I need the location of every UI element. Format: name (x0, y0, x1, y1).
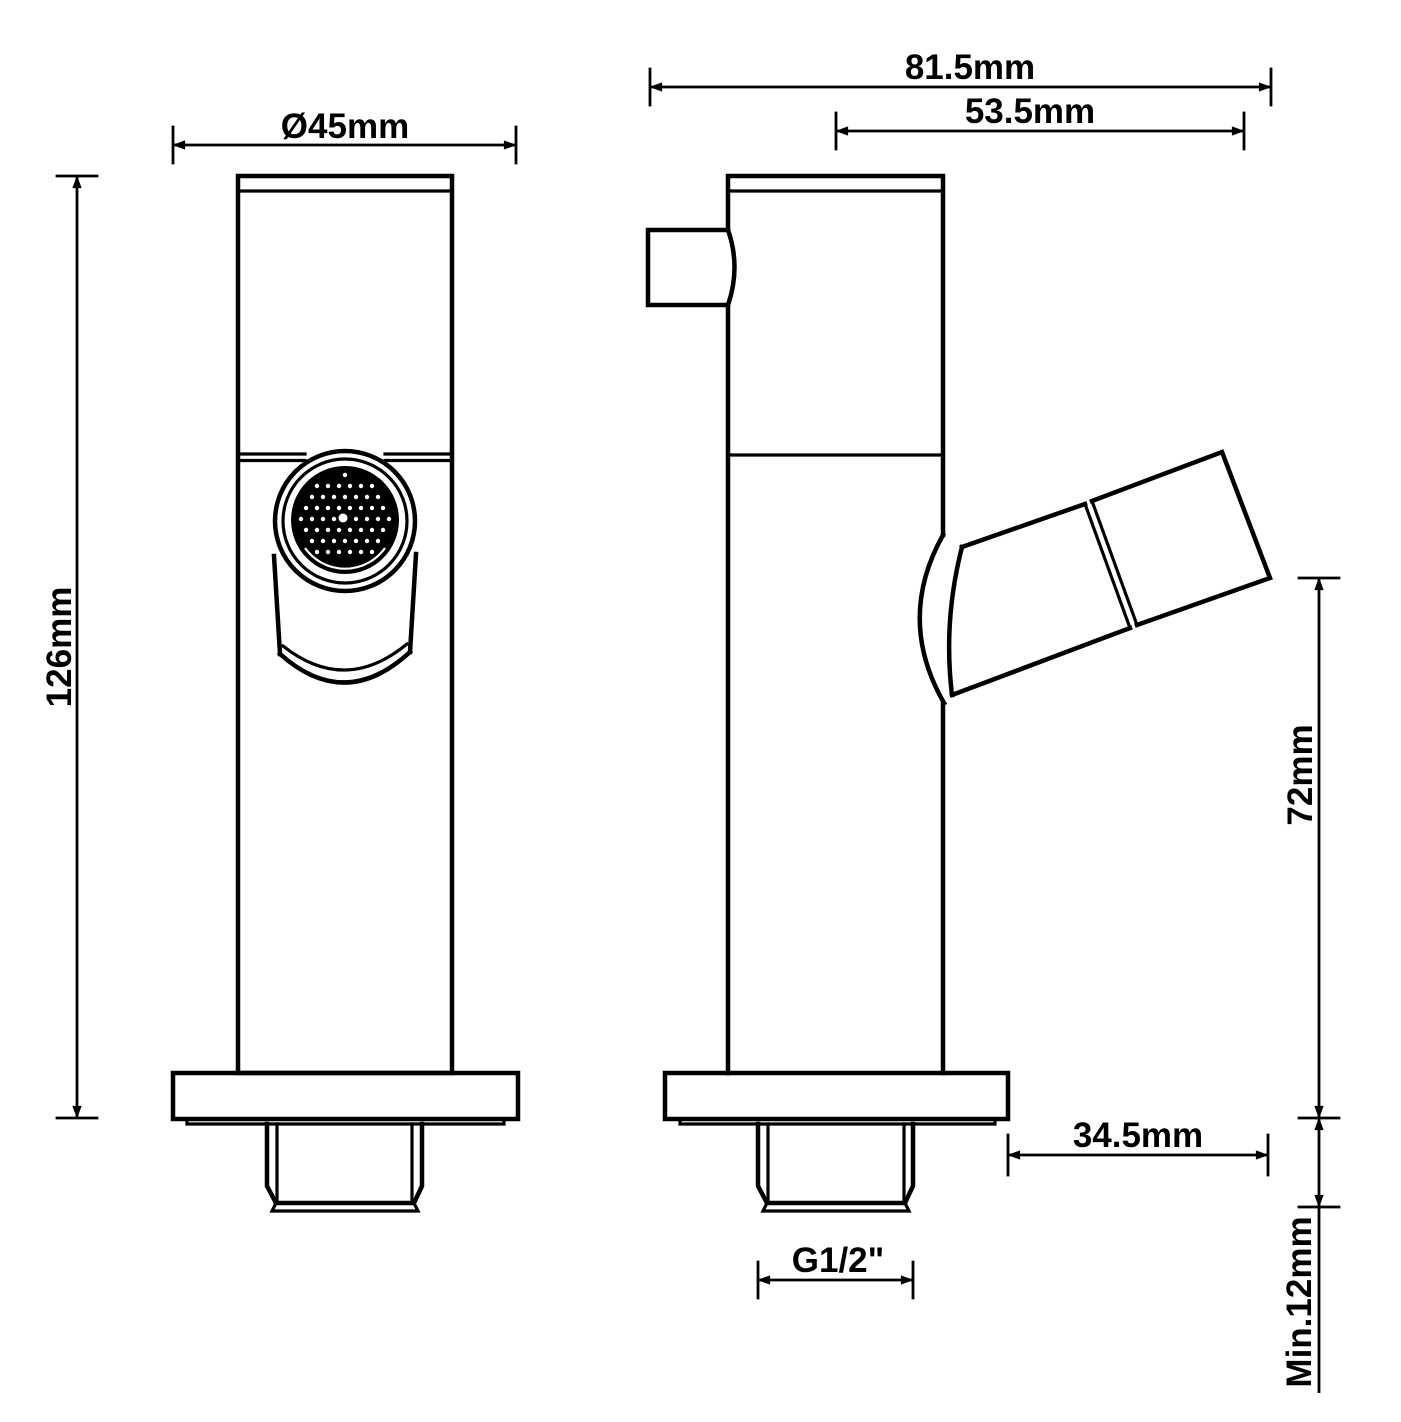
side-thread-relief-lines (768, 1124, 904, 1203)
dim-label-thread-size: G1/2" (792, 1241, 884, 1280)
spout-joint-lines (1085, 501, 1137, 628)
dim-depth: 81.5mm (650, 48, 1271, 105)
front-nozzle (274, 451, 416, 683)
front-flange (173, 1073, 518, 1119)
side-flange (665, 1073, 1008, 1119)
front-thread (267, 1124, 422, 1211)
dim-thread-size: G1/2" (758, 1241, 913, 1298)
side-view (648, 176, 1270, 1211)
dim-label-diameter: Ø45mm (281, 107, 409, 146)
side-thread (758, 1124, 913, 1211)
spout-saddle-inner (949, 547, 962, 695)
dim-label-spout-offset: 34.5mm (1073, 1116, 1203, 1155)
dim-label-depth: 81.5mm (905, 48, 1035, 87)
dim-label-thread-length: Min.12mm (1280, 1216, 1319, 1387)
front-thread-relief-lines (277, 1124, 412, 1203)
drawing-svg: Ø45mm 126mm 81.5mm 53.5mm (0, 0, 1401, 1422)
spout-saddle-outer (920, 535, 944, 703)
dim-spout-offset: 34.5mm (1008, 1116, 1268, 1175)
dim-label-spout-height: 72mm (1281, 724, 1320, 825)
dimensions: Ø45mm 126mm 81.5mm 53.5mm (40, 48, 1339, 1393)
dim-label-spout-reach: 53.5mm (965, 92, 1095, 131)
push-button (648, 230, 735, 305)
dim-diameter: Ø45mm (173, 107, 516, 163)
dim-height: 126mm (40, 176, 97, 1118)
dim-spout-height: 72mm (1281, 578, 1339, 1118)
technical-drawing: Ø45mm 126mm 81.5mm 53.5mm (0, 0, 1401, 1422)
side-body-outline (728, 176, 943, 1073)
side-thread-outline (758, 1124, 913, 1203)
aerator-center-dot (339, 514, 348, 523)
dim-spout-reach: 53.5mm (836, 92, 1244, 149)
dim-thread-length: Min.12mm (1280, 1118, 1339, 1393)
front-body-outline (238, 176, 452, 1073)
front-view (173, 176, 518, 1211)
dim-label-height: 126mm (40, 587, 79, 708)
side-spout (920, 452, 1270, 703)
front-thread-outline (267, 1124, 422, 1203)
